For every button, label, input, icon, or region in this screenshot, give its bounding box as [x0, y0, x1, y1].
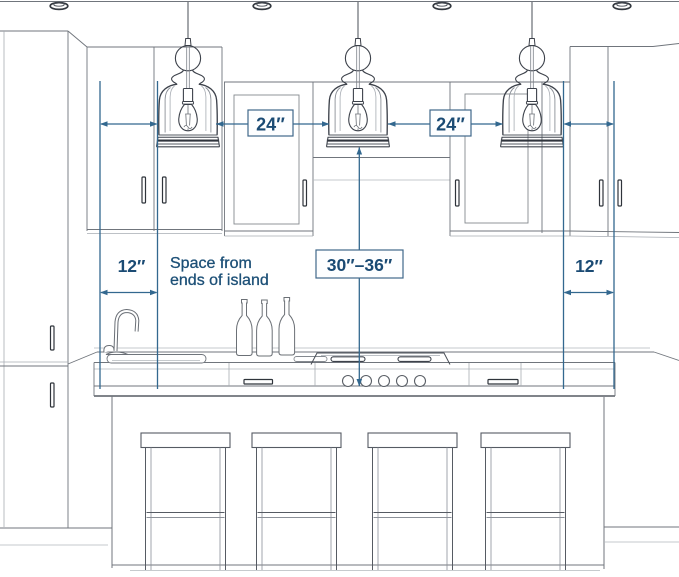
svg-text:Space from: Space from	[170, 255, 252, 272]
svg-text:30″–36″: 30″–36″	[327, 255, 393, 275]
svg-text:24″: 24″	[436, 115, 465, 135]
svg-text:24″: 24″	[256, 115, 285, 135]
svg-text:12″: 12″	[575, 256, 603, 276]
svg-text:12″: 12″	[118, 256, 146, 276]
svg-text:ends of island: ends of island	[170, 272, 269, 289]
